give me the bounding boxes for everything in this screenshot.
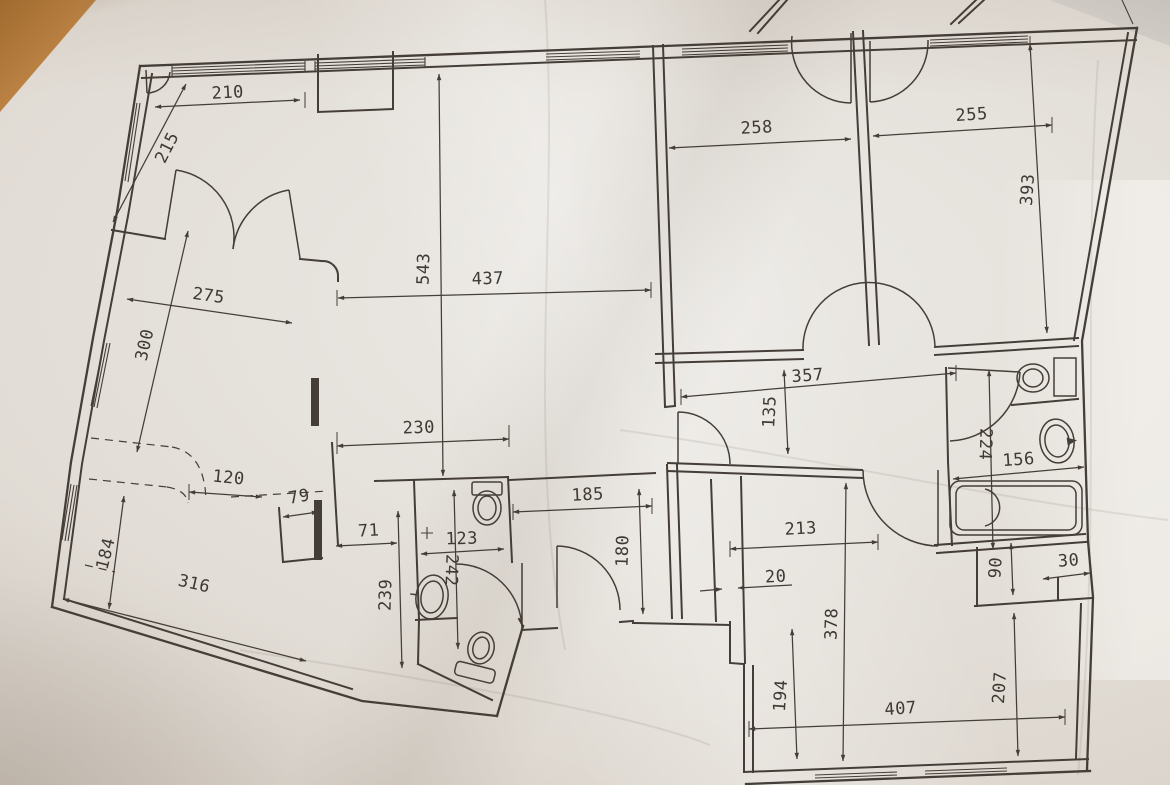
wall-stub (314, 500, 322, 560)
floor-plan-photo: 210 215 275 300 543 437 258 255 393 357 … (0, 0, 1170, 785)
dim-label-30: 30 (1057, 550, 1080, 571)
door-arc-bedroom1-balcony (792, 33, 851, 103)
dim-label-185: 185 (571, 484, 604, 506)
toilet-cistern (1054, 358, 1076, 396)
dim-label-120: 120 (211, 466, 245, 489)
window-bottom-1 (815, 772, 897, 778)
dim-label-184: 184 (93, 536, 120, 572)
dim-label-207: 207 (989, 671, 1011, 705)
paper-creases (240, 0, 1168, 775)
dim-label-239: 239 (375, 578, 396, 611)
dim-label-300: 300 (132, 327, 159, 363)
dim-label-378: 378 (821, 607, 842, 640)
dim-label-123: 123 (445, 528, 478, 549)
dim-label-213: 213 (784, 518, 817, 540)
dim-label-255: 255 (955, 104, 989, 126)
dim-label-393: 393 (1017, 173, 1039, 207)
dim-label-156: 156 (1002, 449, 1036, 471)
toilet-icon-wc (454, 628, 504, 684)
dim-label-210: 210 (211, 82, 244, 104)
dim-label-275: 275 (191, 284, 226, 308)
toilet-icon-right-bath (1017, 364, 1049, 392)
dim-label-135: 135 (759, 395, 781, 428)
radiator-bar (311, 378, 319, 426)
door-arc-center-bathroom (456, 563, 522, 628)
toilet-icon-center-bath (472, 482, 502, 525)
dim-label-180: 180 (612, 534, 633, 567)
dim-label-258: 258 (740, 117, 773, 139)
dim-label-242: 242 (440, 554, 461, 587)
sink-icon-right-bath (1037, 416, 1080, 465)
window-bottom-2 (925, 768, 1007, 774)
dim-label-357: 357 (791, 365, 825, 387)
dim-label-194: 194 (770, 679, 792, 713)
doors (146, 33, 1020, 628)
dim-label-20: 20 (764, 566, 787, 587)
dimension-labels: 210 215 275 300 543 437 258 255 393 357 … (93, 82, 1081, 720)
cross-marker-icon (421, 527, 433, 539)
dim-label-407: 407 (884, 698, 918, 720)
door-arc-bottom-left-room (557, 546, 620, 610)
dim-label-71: 71 (357, 520, 380, 541)
floor-plan-drawing: 210 215 275 300 543 437 258 255 393 357 … (0, 0, 1170, 785)
dim-label-215: 215 (151, 129, 183, 167)
dim-label-230: 230 (402, 417, 435, 438)
dim-label-90: 90 (985, 556, 1006, 579)
dim-label-224: 224 (974, 428, 995, 461)
dim-label-543: 543 (413, 252, 434, 285)
dimension-lines (63, 36, 1090, 761)
dim-label-316: 316 (176, 571, 212, 598)
door-arc-hall-passage (678, 412, 730, 464)
dim-label-79: 79 (287, 485, 312, 508)
dim-label-437: 437 (471, 268, 504, 289)
